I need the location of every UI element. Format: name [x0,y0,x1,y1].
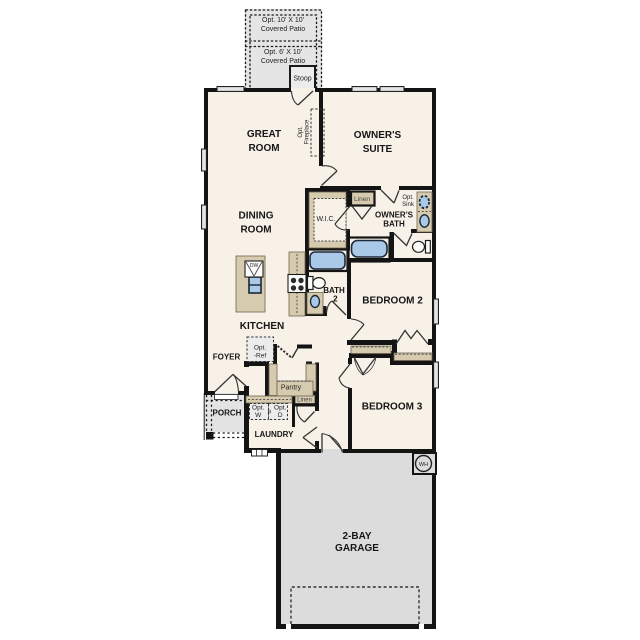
svg-text:Opt. 10' X 10': Opt. 10' X 10' [262,17,304,24]
svg-text:Covered Patio: Covered Patio [261,26,305,33]
svg-text:WH: WH [419,462,428,468]
svg-text:D: D [278,412,283,419]
svg-text:OWNER'S: OWNER'S [375,211,414,220]
svg-text:Opt.: Opt. [274,405,286,412]
svg-text:Sink: Sink [402,202,415,208]
svg-text:BATH: BATH [383,220,405,229]
svg-text:2-BAY: 2-BAY [342,531,371,542]
svg-text:KITCHEN: KITCHEN [240,321,284,332]
svg-text:Stoop: Stoop [293,76,311,83]
svg-text:BEDROOM 2: BEDROOM 2 [362,296,423,307]
svg-text:Fireplace: Fireplace [305,119,311,144]
svg-text:PORCH: PORCH [213,409,242,418]
svg-text:GARAGE: GARAGE [335,543,379,554]
svg-text:BEDROOM 3: BEDROOM 3 [362,402,423,413]
svg-text:W.I.C.: W.I.C. [316,216,335,223]
svg-text:Covered Patio: Covered Patio [261,58,305,65]
svg-text:Opt.: Opt. [298,126,304,138]
svg-text:Opt.: Opt. [252,405,264,412]
svg-text:W: W [255,412,262,419]
svg-text:Opt.: Opt. [402,195,414,201]
svg-text:DW: DW [250,263,259,269]
svg-text:Pantry: Pantry [281,385,302,392]
svg-text:Opt. 6' X 10': Opt. 6' X 10' [264,49,302,56]
svg-text:OWNER'S: OWNER'S [354,130,402,141]
svg-text:ROOM: ROOM [240,225,271,236]
svg-text:GREAT: GREAT [247,129,281,140]
svg-text:Linen: Linen [297,398,312,404]
svg-text:DINING: DINING [239,211,274,222]
svg-text:-Ref: -Ref [254,353,266,360]
svg-text:#: # [268,409,272,416]
svg-text:FOYER: FOYER [213,353,241,362]
svg-text:Linen: Linen [354,196,370,203]
svg-text:ROOM: ROOM [248,143,279,154]
svg-text:LAUNDRY: LAUNDRY [255,430,294,439]
svg-text:SUITE: SUITE [363,144,393,155]
svg-text:2: 2 [333,295,338,304]
svg-text:Opt.: Opt. [254,345,266,352]
